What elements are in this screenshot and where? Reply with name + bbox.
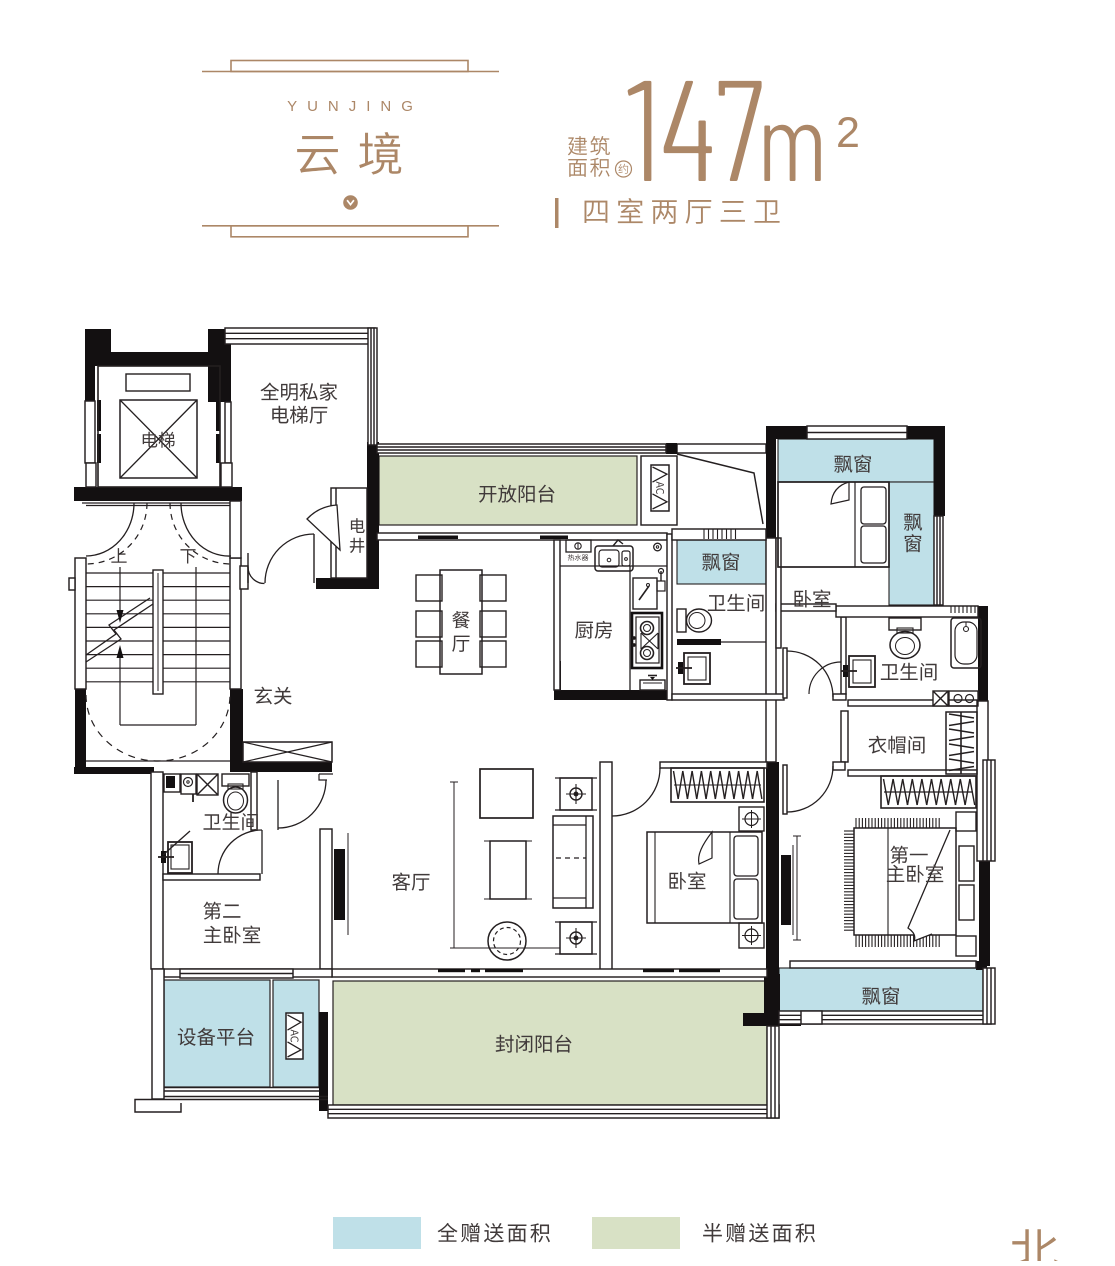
svg-text:YUNJING: YUNJING bbox=[287, 98, 423, 115]
svg-text:2: 2 bbox=[836, 109, 860, 157]
